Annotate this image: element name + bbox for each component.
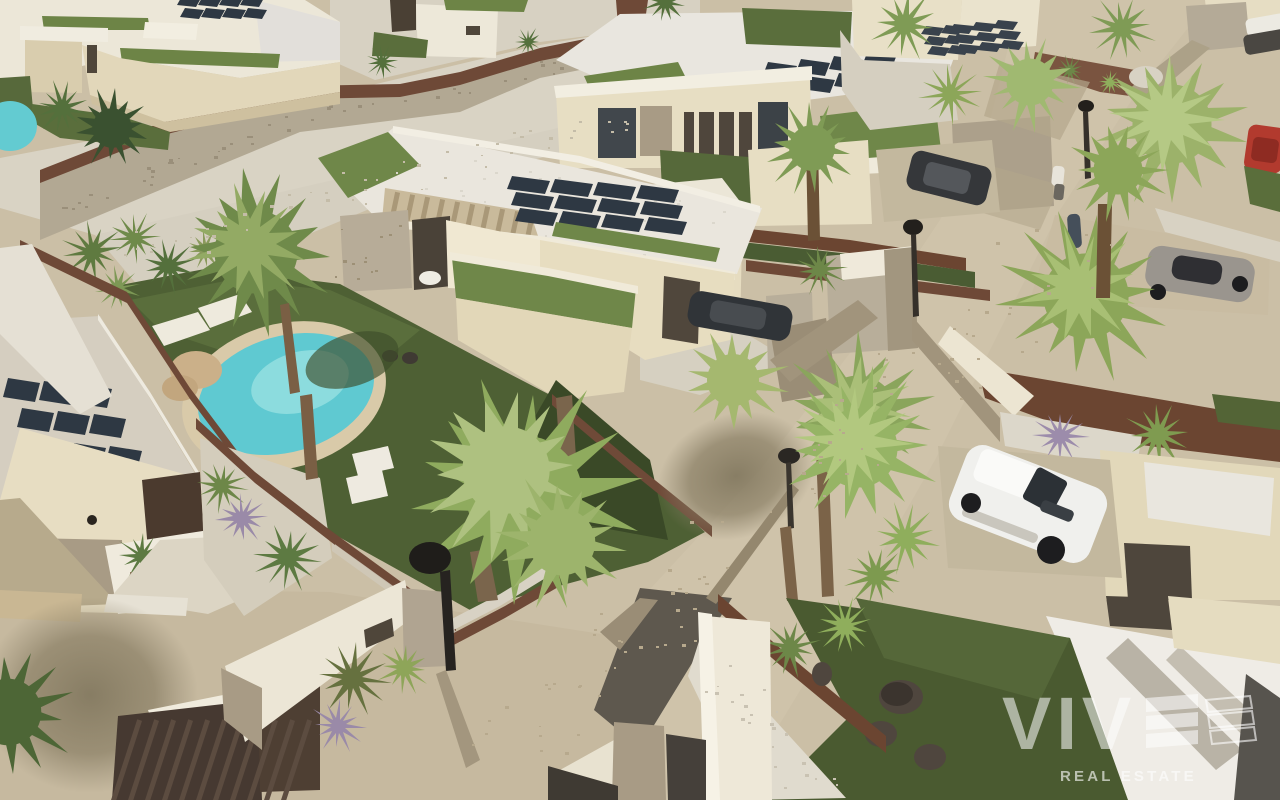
svg-text:VIV: VIV [1002,682,1136,765]
svg-text:REAL ESTATE: REAL ESTATE [1060,768,1197,785]
